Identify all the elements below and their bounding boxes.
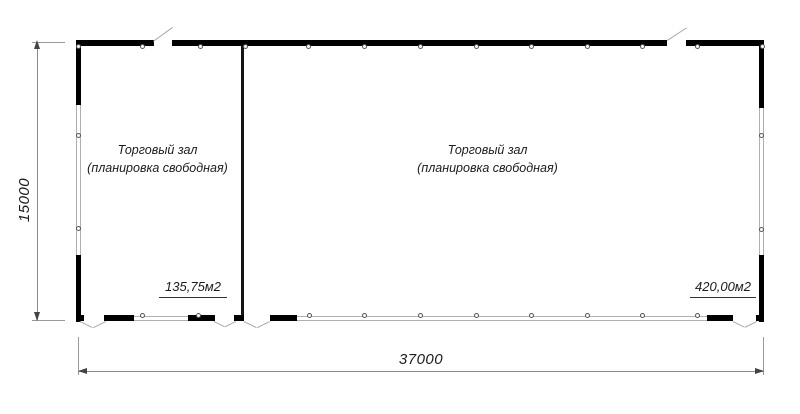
room-name: Торговый зал bbox=[405, 141, 570, 159]
column-marker bbox=[362, 44, 367, 49]
door-swing-line bbox=[244, 321, 257, 328]
dimension-line-vertical bbox=[37, 42, 38, 320]
column-marker bbox=[695, 313, 700, 318]
wall-left-lower bbox=[76, 255, 81, 322]
door-swing-line bbox=[745, 321, 757, 328]
column-marker bbox=[640, 44, 645, 49]
wall-bottom-pier-4 bbox=[707, 315, 733, 321]
column-marker bbox=[585, 313, 590, 318]
door-swing-line bbox=[93, 321, 106, 328]
column-marker bbox=[76, 226, 81, 231]
column-marker bbox=[243, 44, 248, 49]
wall-left-upper bbox=[76, 40, 81, 105]
column-marker bbox=[759, 227, 764, 232]
column-marker bbox=[695, 44, 700, 49]
column-marker bbox=[76, 44, 81, 49]
column-marker bbox=[418, 313, 423, 318]
door-swing-line bbox=[257, 321, 270, 328]
wall-right-lower bbox=[759, 255, 764, 322]
wall-bottom-pier-3 bbox=[270, 315, 297, 321]
room-subtitle: (планировка свободная) bbox=[75, 159, 240, 177]
dimension-arrow-down bbox=[34, 312, 40, 321]
room-area-left: 135,75м2 bbox=[159, 279, 227, 298]
partition-wall bbox=[241, 46, 244, 315]
door-swing-line bbox=[214, 321, 225, 327]
column-marker bbox=[474, 44, 479, 49]
column-marker bbox=[585, 44, 590, 49]
column-marker bbox=[362, 313, 367, 318]
room-name: Торговый зал bbox=[75, 141, 240, 159]
column-marker bbox=[759, 133, 764, 138]
column-marker bbox=[140, 44, 145, 49]
window-strip-bottom-right bbox=[297, 316, 707, 321]
room-area-right: 420,00м2 bbox=[690, 279, 756, 298]
floor-plan: 15000 37000 Торговый зал (планировка сво… bbox=[0, 0, 800, 414]
dimension-arrow-right bbox=[755, 368, 764, 374]
door-swing-line bbox=[225, 321, 236, 327]
column-marker bbox=[198, 44, 203, 49]
room-label-right: Торговый зал (планировка свободная) bbox=[405, 141, 570, 177]
wall-bottom-pier-2 bbox=[188, 315, 215, 321]
door-swing-line bbox=[80, 321, 93, 328]
wall-bottom-pier-1 bbox=[104, 315, 134, 321]
door-swing-line bbox=[733, 321, 745, 328]
column-marker bbox=[529, 313, 534, 318]
wall-right-upper bbox=[759, 40, 764, 108]
dimension-arrow-left bbox=[78, 368, 87, 374]
wall-bottom-corner-right bbox=[756, 315, 764, 321]
column-marker bbox=[474, 313, 479, 318]
column-marker bbox=[640, 313, 645, 318]
column-marker bbox=[418, 44, 423, 49]
column-marker bbox=[306, 44, 311, 49]
window-strip-left bbox=[76, 105, 81, 255]
column-marker bbox=[76, 133, 81, 138]
dimension-label-height: 15000 bbox=[16, 155, 36, 245]
column-marker bbox=[307, 313, 312, 318]
dimension-arrow-up bbox=[34, 40, 40, 49]
column-marker bbox=[760, 44, 765, 49]
door-swing-line bbox=[667, 27, 687, 40]
room-label-left: Торговый зал (планировка свободная) bbox=[75, 141, 240, 177]
column-marker bbox=[196, 313, 201, 318]
room-subtitle: (планировка свободная) bbox=[405, 159, 570, 177]
column-marker bbox=[140, 313, 145, 318]
dimension-line-horizontal bbox=[78, 371, 764, 372]
dimension-label-width: 37000 bbox=[371, 351, 471, 368]
column-marker bbox=[529, 44, 534, 49]
window-strip-right bbox=[759, 108, 764, 255]
door-swing-line bbox=[153, 27, 173, 42]
